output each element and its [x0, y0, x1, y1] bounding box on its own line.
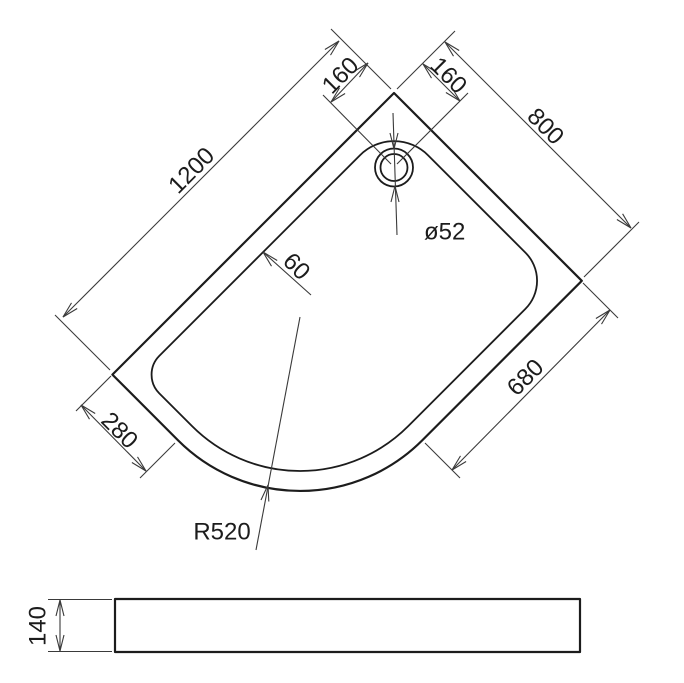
- dim-160-right-label: 160: [425, 52, 472, 99]
- extension-line: [583, 283, 618, 318]
- extension-line: [140, 443, 175, 478]
- technical-drawing-page: 1200 160 160 800: [0, 0, 684, 683]
- dim-680-label: 680: [502, 354, 549, 401]
- extension-line: [55, 315, 110, 370]
- extension-line: [397, 93, 468, 164]
- dim-1200-label: 1200: [163, 142, 220, 199]
- extension-line: [584, 222, 639, 277]
- dim-140-label: 140: [24, 606, 51, 646]
- tray-inner-outline: [152, 141, 537, 471]
- plan-view: 1200 160 160 800: [55, 29, 639, 550]
- dim-radius: R520: [193, 317, 300, 550]
- dim-800-label: 800: [522, 103, 569, 150]
- leader-line: [393, 113, 397, 235]
- profile-outline: [115, 599, 580, 652]
- extension-line: [425, 443, 460, 478]
- dim-drain-diameter-label: ø52: [424, 218, 465, 245]
- dim-160-left-label: 160: [317, 52, 364, 99]
- profile-view: 140: [24, 599, 580, 652]
- dim-140: 140: [24, 600, 112, 652]
- tray-outer-outline: [112, 93, 581, 491]
- dim-rim-width: 60: [263, 248, 315, 295]
- leader-line: [256, 317, 300, 550]
- dim-rim-width-label: 60: [277, 248, 315, 286]
- dim-280: 280: [76, 376, 175, 478]
- shower-tray-drawing: 1200 160 160 800: [0, 0, 684, 683]
- dim-280-label: 280: [96, 407, 143, 454]
- dim-radius-label: R520: [193, 518, 250, 545]
